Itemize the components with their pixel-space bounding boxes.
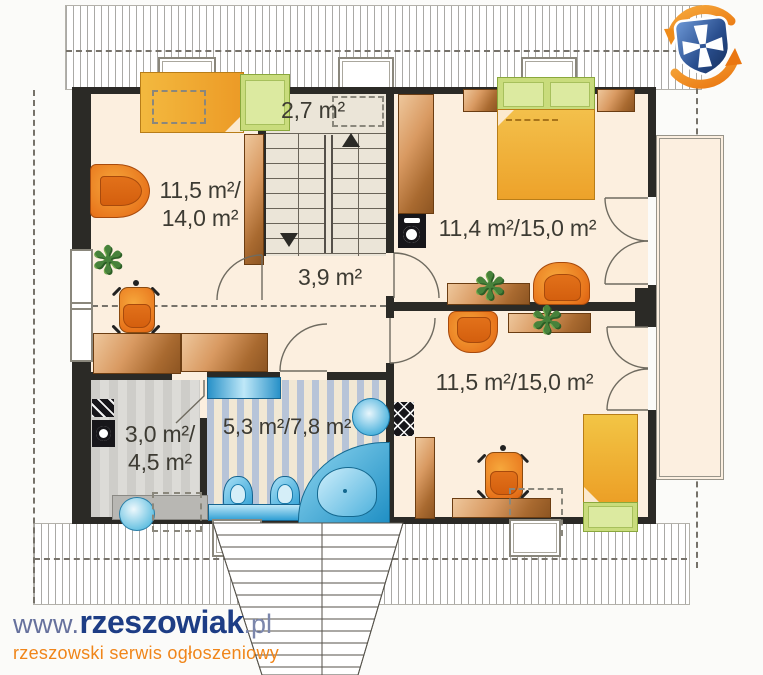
watermark-url: www.rzeszowiak.pl xyxy=(13,604,279,641)
watermark-tagline: rzeszowski serwis ogłoszeniowy xyxy=(13,643,279,664)
watermark: www.rzeszowiak.pl rzeszowski serwis ogło… xyxy=(13,604,279,664)
plan-lines-overlay xyxy=(0,0,763,675)
logo-shield-icon xyxy=(674,16,732,77)
door-arc-bedroom-left xyxy=(217,255,262,300)
door-arc-bathroom xyxy=(280,324,327,371)
watermark-tld: .pl xyxy=(243,609,272,640)
french-door-br-upper xyxy=(607,327,648,368)
french-door-tr-lower xyxy=(605,241,648,284)
french-door-br-lower xyxy=(607,369,648,410)
floor-plan-page: 11,5 m²/ 14,0 m² ✻ 2,7 m² 3,9 m² 11,4 m²… xyxy=(0,0,763,675)
door-arc-bedroom-top-right xyxy=(394,253,439,298)
door-arc-bedroom-bottom-right xyxy=(390,318,435,363)
watermark-brand: rzeszowiak xyxy=(80,604,244,641)
watermark-www: www. xyxy=(13,609,80,640)
french-door-tr-upper xyxy=(605,198,648,241)
rzeszowiak-logo xyxy=(659,3,747,91)
door-leaf-wardrobe-room xyxy=(176,380,204,423)
